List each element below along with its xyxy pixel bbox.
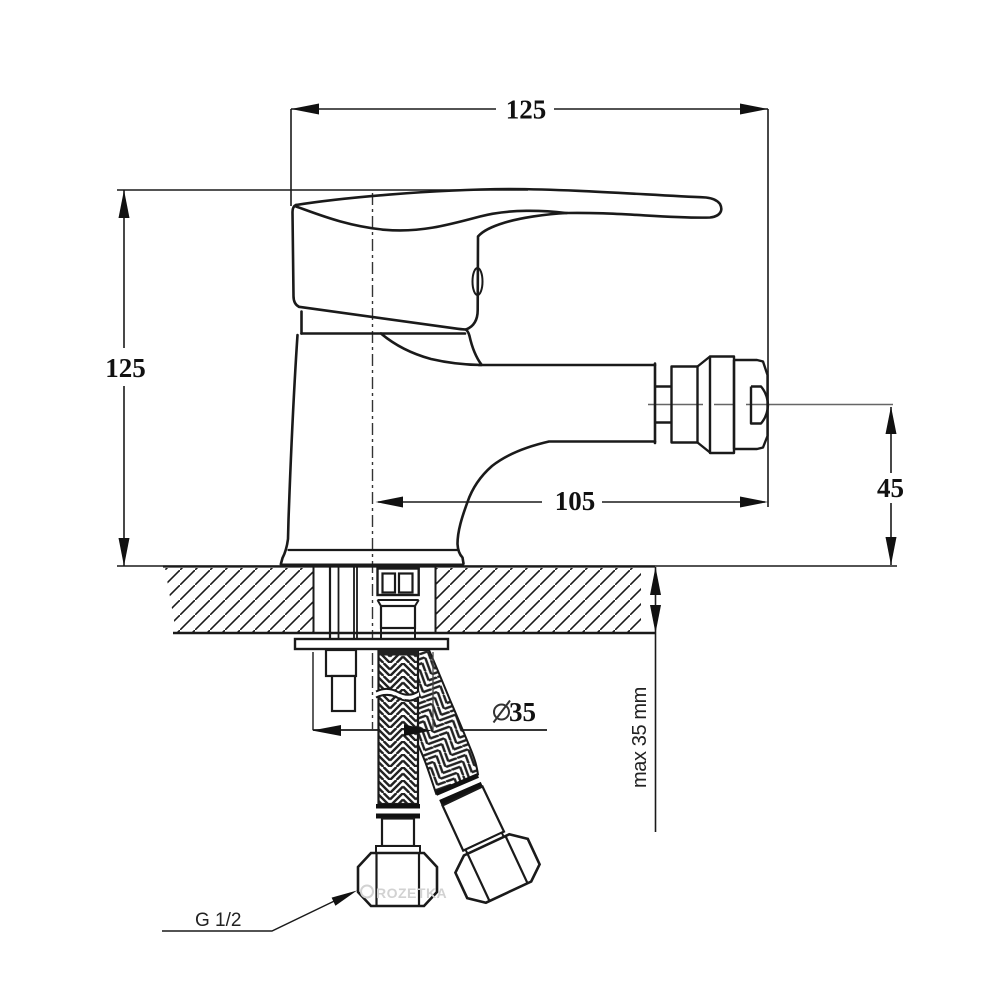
svg-text:G 1/2: G 1/2 <box>195 910 241 931</box>
svg-text:125: 125 <box>506 95 547 125</box>
svg-text:125: 125 <box>105 353 146 383</box>
svg-text:35: 35 <box>509 697 536 727</box>
svg-text:ROZETKA: ROZETKA <box>376 885 447 901</box>
svg-text:105: 105 <box>555 486 596 516</box>
svg-text:45: 45 <box>877 473 904 503</box>
svg-text:max 35 mm: max 35 mm <box>629 687 651 788</box>
